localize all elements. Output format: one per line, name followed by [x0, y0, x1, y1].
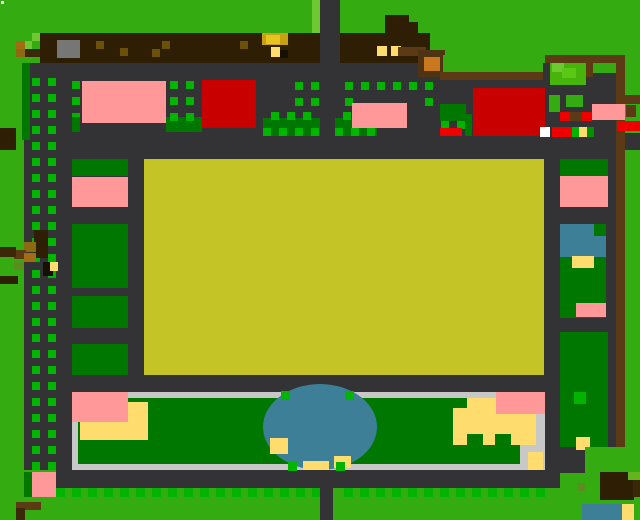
left-road-crops-dot	[32, 94, 40, 102]
fence-leg	[586, 63, 593, 77]
crate[interactable]	[424, 57, 440, 71]
pond-grass-dots-dot	[336, 462, 345, 471]
garden-plot-c[interactable]	[72, 296, 128, 328]
red-strip-440	[440, 128, 462, 136]
teeth-right-dot	[488, 488, 497, 497]
left-road-crops-dot	[48, 334, 56, 342]
left-road-crops-dot	[32, 366, 40, 374]
left-road-crops-dot	[32, 446, 40, 454]
left-road-crops-dot	[32, 78, 40, 86]
left-road-crops-dot	[32, 398, 40, 406]
left-road-crops-dot	[48, 302, 56, 310]
pondsq-green-tr	[594, 224, 606, 236]
garden-plot-g[interactable]	[560, 332, 608, 447]
teeth-left-dot	[248, 488, 257, 497]
crops-170-dot	[186, 113, 194, 121]
pond-sand-1	[270, 438, 288, 454]
pond-small-sand	[622, 504, 634, 520]
garden-plot-b[interactable]	[72, 224, 128, 288]
street-dots-row-dot	[377, 82, 385, 90]
teeth-left-dot	[56, 488, 65, 497]
pink-house-9[interactable]	[32, 472, 56, 497]
soil-spot-3	[152, 49, 160, 57]
teeth-right-dot	[344, 488, 353, 497]
crops-170-dot	[186, 97, 194, 105]
garden-plot-a[interactable]	[72, 159, 128, 176]
crop-dots-263-dot	[287, 112, 295, 120]
teeth-right-dot	[504, 488, 513, 497]
street-dots-row-dot	[345, 82, 353, 90]
teeth-left-dot	[296, 488, 305, 497]
crops-170-dot	[170, 113, 178, 121]
left-road-crops-dot	[32, 350, 40, 358]
crop-dots-335-dot	[367, 128, 375, 136]
left-road-crops-dot	[48, 110, 56, 118]
yellow-field[interactable]	[144, 159, 544, 375]
left-road-crops-dot	[48, 94, 56, 102]
teeth-right-dot	[472, 488, 481, 497]
pondsq-green-bl	[560, 257, 572, 268]
teeth-right-dot	[376, 488, 385, 497]
tree2-root	[0, 247, 16, 257]
street-dots-row-dot	[425, 98, 433, 106]
left-road-crops-dot	[48, 430, 56, 438]
left-road-crops-dot	[32, 206, 40, 214]
street-dots-row-dot	[361, 82, 369, 90]
street-dots-row-dot	[409, 82, 417, 90]
left-road-crops-dot	[32, 222, 40, 230]
teeth-left-dot	[88, 488, 97, 497]
pink-house-7[interactable]	[72, 392, 128, 422]
pond-sand-2	[303, 461, 329, 470]
sand-notch-green-3	[495, 434, 511, 445]
teeth-left-dot	[232, 488, 241, 497]
white-corner-pixel	[1, 1, 4, 4]
green-dot-574	[574, 392, 586, 404]
tree-canopy-top-2	[402, 22, 418, 34]
red-strip-617	[617, 121, 640, 131]
left-road-crops-dot	[32, 430, 40, 438]
fence-row-1	[440, 72, 543, 80]
left-road-crops-dot	[32, 318, 40, 326]
pink-house-4[interactable]	[72, 177, 128, 207]
left-road-crops-dot	[32, 382, 40, 390]
soil-spot-1	[96, 41, 104, 49]
fence-row-2	[545, 55, 625, 63]
left-road-crops-dot	[48, 446, 56, 454]
left-road-crops-dot	[48, 286, 56, 294]
sapling-wood-2	[16, 49, 25, 57]
teeth-left-dot	[200, 488, 209, 497]
pink-house-8[interactable]	[496, 392, 545, 414]
green-stall-587	[587, 127, 594, 137]
soil-spot-2	[120, 48, 128, 56]
soil-spot-5	[240, 41, 248, 49]
fence-arm	[616, 95, 640, 104]
hay-hole	[280, 50, 288, 58]
crops-295-dot	[311, 82, 319, 90]
left-road-crops-dot	[48, 318, 56, 326]
hay-grain	[271, 47, 280, 57]
left-road-crops-dot	[32, 462, 40, 470]
stone-slab	[57, 40, 80, 58]
left-road-crops-dot	[48, 222, 56, 230]
tree2-sand	[50, 262, 58, 271]
pondsq-sand	[572, 256, 594, 268]
garden-plot-e[interactable]	[560, 159, 608, 176]
teeth-right-dot	[520, 488, 529, 497]
red-pixel-582	[582, 112, 592, 121]
sapling-leaf-2	[24, 41, 32, 49]
left-road-crops-dot	[32, 158, 40, 166]
left-road-crops-dot	[48, 366, 56, 374]
crop-dots-263-dot	[263, 128, 271, 136]
left-road-crops-dot	[48, 254, 56, 262]
crop-dots-335-dot	[343, 112, 351, 120]
crops-col-72-dot	[72, 97, 80, 105]
olive-dot	[577, 483, 585, 491]
pond-grass-dots-dot	[288, 462, 297, 471]
left-road-crops-dot	[48, 158, 56, 166]
tree2-leaf	[14, 262, 24, 270]
tree2-trunk	[34, 230, 48, 258]
grass-light-square	[628, 472, 640, 480]
crop-dots-263-dot	[279, 128, 287, 136]
crops-170-dot	[170, 97, 178, 105]
pond-grass-dots-dot	[281, 391, 290, 400]
left-road-crops-dot	[32, 142, 40, 150]
vertical-road-top	[320, 0, 340, 63]
left-road-crops-dot	[32, 286, 40, 294]
sand-dot-1	[377, 46, 387, 56]
wood-pixel-570	[570, 112, 582, 121]
grass-band-443	[443, 55, 543, 72]
red-building-1[interactable]	[202, 80, 256, 128]
pink-house-6[interactable]	[576, 303, 606, 317]
left-road-crops-dot	[48, 238, 56, 246]
wood-cellar	[0, 128, 16, 150]
crop-dots-335-dot	[351, 128, 359, 136]
town-map-canvas[interactable]	[0, 0, 640, 520]
teeth-left-dot	[264, 488, 273, 497]
crop-dots-263-dot	[303, 112, 311, 120]
pink-house-3[interactable]	[592, 104, 625, 120]
left-road-crops-dot	[48, 350, 56, 358]
tree2-base	[0, 276, 18, 284]
teeth-right-dot	[424, 488, 433, 497]
left-road-crops-dot	[32, 126, 40, 134]
crops-295-dot	[311, 98, 319, 106]
hay-pile-top	[266, 35, 280, 44]
teeth-left-dot	[152, 488, 161, 497]
crop-dots-263-dot	[295, 128, 303, 136]
left-road-crops-dot	[48, 142, 56, 150]
sand-notch-green-2	[467, 434, 483, 445]
red-stall	[552, 127, 572, 137]
plot-blob-440	[440, 104, 466, 121]
wood-box-626	[626, 105, 636, 117]
teeth-right-dot	[408, 488, 417, 497]
grass-sliver	[312, 0, 320, 33]
teeth-left-dot	[136, 488, 145, 497]
soil-spot-4	[162, 41, 170, 49]
crops-170-dot	[186, 81, 194, 89]
crop-dots-335-dot	[335, 128, 343, 136]
pond-grass-dots-dot	[345, 391, 354, 400]
teeth-left-dot	[280, 488, 289, 497]
sand-stall-579	[579, 127, 587, 137]
pond-small[interactable]	[582, 504, 622, 520]
road-stub	[56, 470, 64, 488]
left-road-crops-dot	[48, 174, 56, 182]
crops-col-72-dot	[72, 81, 80, 89]
left-hedge	[22, 63, 30, 140]
bench-leg	[16, 508, 25, 520]
teeth-right-dot	[456, 488, 465, 497]
tree2-branch-3	[24, 253, 36, 262]
hedge-bottom-left	[24, 472, 32, 497]
teeth-left-dot	[120, 488, 129, 497]
left-road-crops-dot	[48, 190, 56, 198]
crop-dots-263-dot	[271, 112, 279, 120]
vertical-road-bottom	[320, 470, 333, 520]
teeth-right-dot	[536, 488, 545, 497]
sapling-leaf-1	[32, 33, 40, 41]
teeth-right-dot	[360, 488, 369, 497]
left-road-crops-dot	[32, 334, 40, 342]
left-road-crops-dot	[48, 126, 56, 134]
lawn-566	[566, 95, 583, 107]
left-road-crops-dot	[32, 414, 40, 422]
teeth-right-dot	[440, 488, 449, 497]
sapling-wood-3	[25, 49, 40, 57]
left-road-crops-dot	[32, 174, 40, 182]
bush-highlight-2	[562, 68, 576, 78]
left-road-crops-dot	[32, 270, 40, 278]
left-road-crops-dot	[32, 190, 40, 198]
left-road-crops-dot	[48, 462, 56, 470]
left-road-crops-dot	[32, 302, 40, 310]
pondsq-green-br	[594, 257, 606, 268]
road-extension-right	[625, 133, 640, 150]
teeth-left-dot	[72, 488, 81, 497]
crop-dots-263-dot	[311, 128, 319, 136]
plot-dot-72	[72, 117, 80, 132]
pink-house-5[interactable]	[560, 176, 608, 207]
grass-patch-585	[585, 447, 616, 473]
teeth-left-dot	[216, 488, 225, 497]
left-road-crops-dot	[48, 206, 56, 214]
green-stall-572	[572, 127, 579, 137]
teeth-left-dot	[168, 488, 177, 497]
left-road-crops-dot	[48, 414, 56, 422]
teeth-left-dot	[184, 488, 193, 497]
left-road-crops-dot	[48, 78, 56, 86]
pink-house-1[interactable]	[82, 81, 166, 123]
left-road-crops-dot	[48, 382, 56, 390]
red-building-2[interactable]	[473, 88, 545, 136]
garden-plot-d[interactable]	[72, 344, 128, 375]
plot-vert-465	[465, 114, 472, 136]
street-dots-row-dot	[425, 82, 433, 90]
teeth-left-dot	[104, 488, 113, 497]
crops-295-dot	[295, 98, 303, 106]
crops-295-dot	[295, 82, 303, 90]
red-pixel-560	[560, 112, 570, 121]
street-dots-row-dot	[393, 82, 401, 90]
sand-notch-green-1	[453, 398, 467, 408]
crops-170-dot	[170, 81, 178, 89]
teeth-right-dot	[392, 488, 401, 497]
pink-house-2[interactable]	[352, 103, 407, 128]
left-road-crops-dot	[32, 110, 40, 118]
left-road-crops-dot	[48, 398, 56, 406]
grass-notch-593	[593, 63, 616, 73]
white-stall	[540, 127, 550, 137]
park-sand-dot	[528, 452, 543, 470]
lawn-549	[549, 95, 560, 112]
